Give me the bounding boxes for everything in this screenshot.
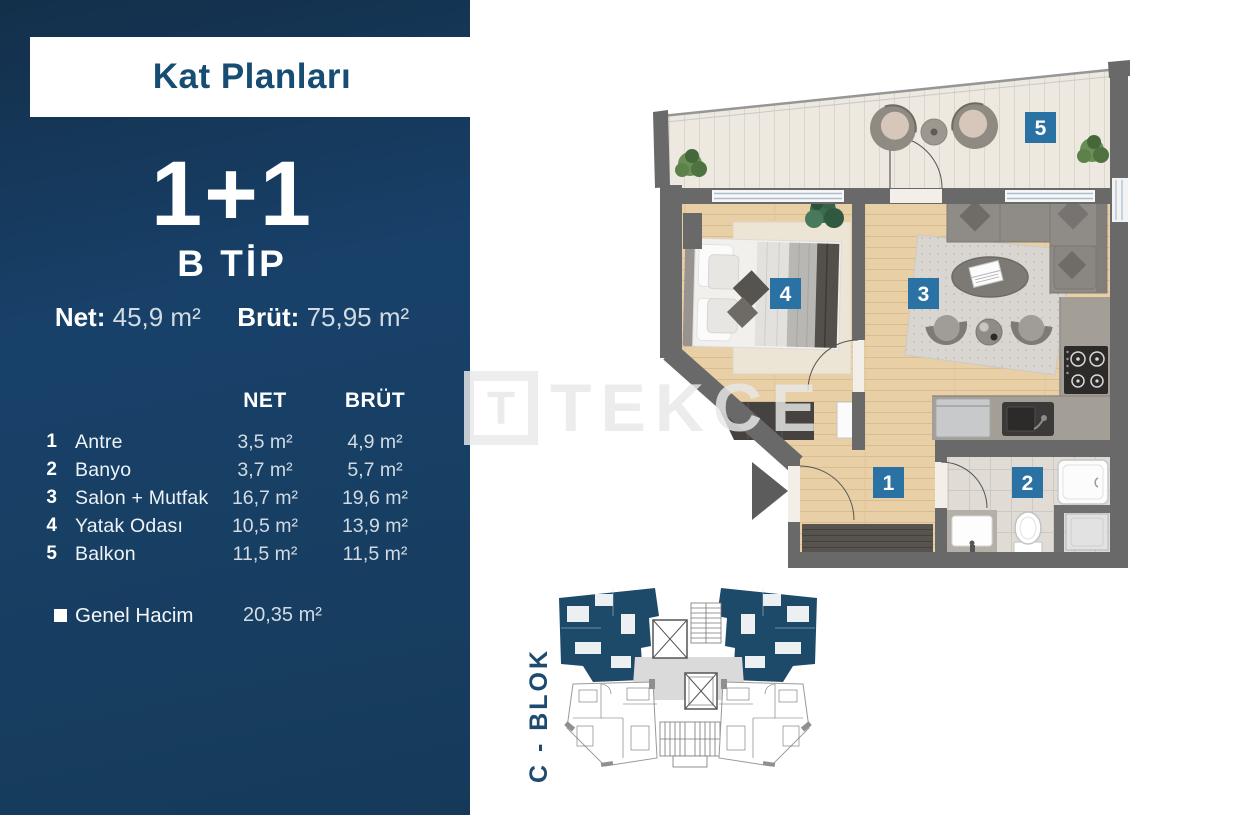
room-net: 11,5 m² [210, 543, 320, 566]
total-volume-value: 20,35 m² [243, 604, 322, 627]
unit-type: 1+1 [0, 148, 464, 240]
header-box: Kat Planları [30, 37, 474, 117]
total-volume-row: Genel Hacim 20,35 m² [0, 604, 470, 630]
room-brut: 13,9 m² [320, 515, 430, 538]
room-net: 10,5 m² [210, 515, 320, 538]
floorplan: 1 2 3 4 5 [550, 50, 1150, 590]
room-brut: 11,5 m² [320, 543, 430, 566]
row-number: 3 [0, 487, 65, 509]
keyplan [553, 586, 823, 771]
row-number: 2 [0, 459, 65, 481]
page-title: Kat Planları [153, 57, 352, 97]
brut-value: 75,95 m² [307, 302, 410, 332]
table-row: 5 Balkon 11,5 m² 11,5 m² [0, 540, 470, 568]
room-name: Antre [65, 431, 210, 454]
brut-label: Brüt: [237, 302, 299, 332]
room-brut: 5,7 m² [320, 459, 430, 482]
room-badge-bath: 2 [1012, 467, 1043, 498]
sidebar: Kat Planları 1+1 B TİP Net: 45,9 m² Brüt… [0, 0, 470, 815]
unit-subtype: B TİP [0, 243, 464, 285]
table-row: 1 Antre 3,5 m² 4,9 m² [0, 428, 470, 456]
room-brut: 4,9 m² [320, 431, 430, 454]
block-label: C - BLOK [505, 645, 575, 785]
room-name: Yatak Odası [65, 515, 210, 538]
room-badge-balcony: 5 [1025, 112, 1056, 143]
stove-icon [1064, 346, 1108, 394]
table-row: 3 Salon + Mutfak 16,7 m² 19,6 m² [0, 484, 470, 512]
row-number: 1 [0, 431, 65, 453]
room-net: 16,7 m² [210, 487, 320, 510]
washing-machine-icon [1066, 514, 1108, 550]
dishwasher-icon [936, 399, 990, 437]
table-row: 4 Yatak Odası 10,5 m² 13,9 m² [0, 512, 470, 540]
room-name: Banyo [65, 459, 210, 482]
stairs-icon [691, 603, 721, 643]
brut-column-header: BRÜT [320, 389, 430, 413]
room-badge-hall: 1 [873, 467, 904, 498]
room-name: Salon + Mutfak [65, 487, 210, 510]
svg-text:2: 2 [1022, 472, 1034, 495]
table-row: 2 Banyo 3,7 m² 5,7 m² [0, 456, 470, 484]
elevator-icon [685, 673, 717, 709]
kitchen-sink-icon [1002, 402, 1054, 436]
logo-letter: T [487, 381, 515, 435]
room-net: 3,7 m² [210, 459, 320, 482]
area-table: NET BRÜT 1 Antre 3,5 m² 4,9 m² 2 Banyo 3… [0, 388, 470, 568]
stairs-icon [660, 722, 720, 767]
net-column-header: NET [210, 389, 320, 413]
flyer-canvas: Kat Planları 1+1 B TİP Net: 45,9 m² Brüt… [0, 0, 1254, 815]
doormat [802, 524, 933, 552]
side-table [976, 319, 1002, 345]
room-brut: 19,6 m² [320, 487, 430, 510]
room-badge-bedroom: 4 [770, 278, 801, 309]
entry-arrow-icon [752, 462, 788, 520]
coffee-table [952, 257, 1028, 297]
row-number: 4 [0, 515, 65, 537]
bed [683, 238, 842, 350]
row-number: 5 [0, 543, 65, 565]
balcony-table [921, 119, 947, 145]
toilet-icon [1014, 512, 1042, 553]
svg-text:3: 3 [918, 283, 930, 306]
table-header: NET BRÜT [0, 388, 470, 414]
room-badge-living: 3 [908, 278, 939, 309]
elevator-icon [653, 620, 687, 658]
area-summary: Net: 45,9 m² Brüt: 75,95 m² [0, 302, 464, 333]
square-bullet-icon [54, 609, 67, 622]
tekce-logo-icon: T [464, 371, 538, 445]
shower-icon [1058, 460, 1108, 504]
net-value: 45,9 m² [113, 302, 201, 332]
svg-text:4: 4 [780, 283, 792, 306]
svg-text:1: 1 [883, 472, 895, 495]
total-volume-label: Genel Hacim [75, 604, 194, 628]
block-label-text: C - BLOK [526, 647, 555, 782]
room-net: 3,5 m² [210, 431, 320, 454]
room-name: Balkon [65, 543, 210, 566]
net-label: Net: [55, 302, 106, 332]
bathroom-sink-icon [947, 510, 997, 552]
svg-text:5: 5 [1035, 117, 1047, 140]
